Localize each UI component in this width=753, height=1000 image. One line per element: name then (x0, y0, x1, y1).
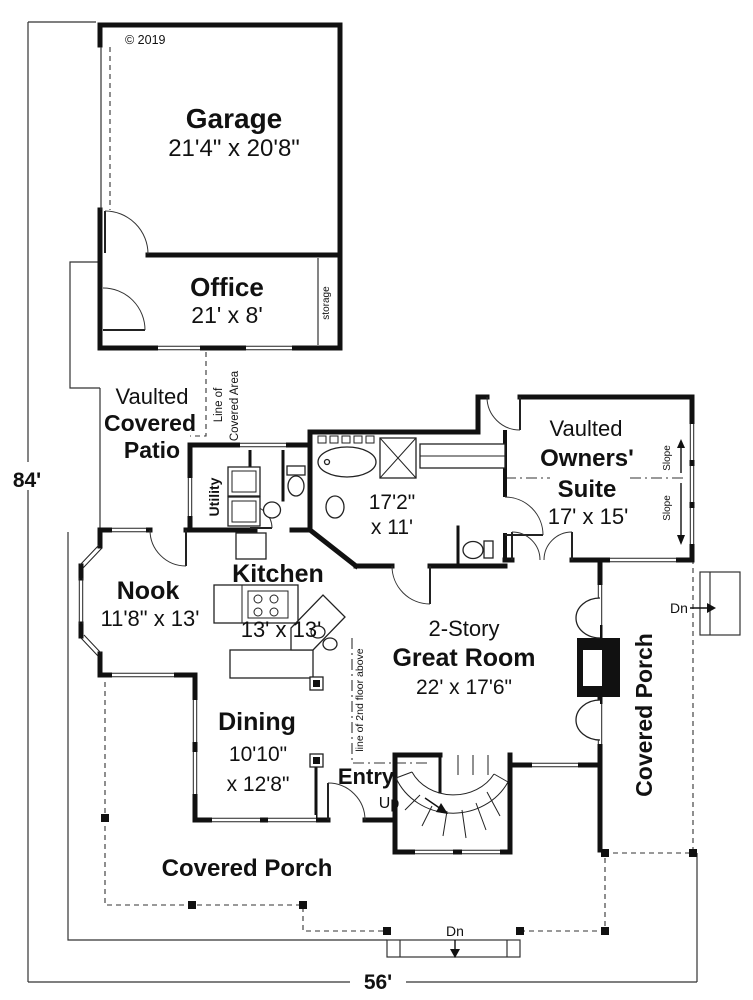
vanity-sink (326, 496, 344, 518)
powder-sink (264, 502, 281, 518)
suite-size: 17' x 15' (548, 504, 629, 529)
tub-deck-tile (318, 436, 374, 443)
kitchen-counter (230, 650, 313, 678)
side-steps (700, 572, 740, 635)
tub-drain (325, 460, 330, 465)
garage-size: 21'4" x 20'8" (168, 135, 300, 162)
width-dimension: 56' (364, 971, 392, 994)
slope-label-1: Slope (662, 445, 673, 471)
powder-toilet-tank (287, 466, 305, 475)
height-dimension: 84' (13, 469, 41, 492)
curved-stair (396, 755, 508, 838)
bath-hall-door (392, 566, 430, 604)
garage-office-door (105, 211, 148, 254)
kitchen-label: Kitchen (232, 560, 324, 588)
great-room-label-2: Great Room (392, 644, 535, 672)
bath-suite-door (505, 497, 543, 535)
dining-label: Dining (218, 708, 296, 736)
bath-size-2: x 11' (371, 516, 413, 539)
wc-toilet-bowl (463, 542, 483, 559)
dining-size-2: x 12'8" (227, 773, 290, 796)
dn-bottom-label: Dn (446, 923, 464, 939)
suite-french-door-left (512, 532, 540, 560)
interior-column-1 (310, 677, 323, 690)
up-label: Up (379, 795, 400, 812)
nook-label: Nook (117, 577, 180, 605)
porch-bottom-label: Covered Porch (162, 855, 333, 882)
garage-label: Garage (186, 103, 283, 134)
interior-column-2 (310, 754, 323, 767)
copyright-text: © 2019 (125, 33, 166, 47)
labels: © 2019 Garage 21'4" x 20'8" Office 21' x… (10, 33, 688, 994)
great-room-label-1: 2-Story (429, 616, 500, 641)
dining-size-1: 10'10" (229, 743, 287, 766)
kitchen-sink-2 (323, 638, 337, 650)
suite-label-1: Vaulted (550, 416, 623, 441)
great-room-size: 22' x 17'6" (416, 676, 512, 699)
covered-area-note-1: Line of (213, 387, 225, 422)
suite-label-3: Suite (558, 476, 617, 503)
nook-size: 11'8" x 13' (101, 606, 200, 631)
suite-label-2: Owners' (540, 445, 634, 472)
stair-treads (396, 772, 508, 838)
slope-arrow-down (677, 535, 685, 545)
storage-label: storage (321, 286, 332, 320)
stair-inner-rail (412, 772, 494, 795)
office-size: 21' x 8' (191, 302, 262, 328)
entry-label: Entry (338, 764, 395, 789)
powder-toilet-bowl (288, 476, 304, 496)
slope-arrow-up (677, 439, 685, 448)
stair-outer-rail (396, 778, 508, 813)
patio-label-1: Vaulted (116, 384, 189, 409)
covered-area-note-2: Covered Area (229, 370, 241, 441)
suite-french-door-right (544, 532, 572, 560)
patio-label-3: Patio (124, 437, 180, 463)
porch-right-label: Covered Porch (631, 633, 657, 797)
stair-upper-treads (458, 755, 488, 775)
floor-plan-svg: © 2019 Garage 21'4" x 20'8" Office 21' x… (0, 0, 753, 1000)
dn-right-label: Dn (670, 600, 688, 616)
wc-toilet-tank (484, 541, 493, 558)
bath-size-1: 17'2" (369, 491, 416, 514)
kitchen-size: 13' x 13' (241, 617, 322, 642)
office-label: Office (190, 272, 264, 302)
patio-nook-door (150, 530, 186, 566)
office-exterior-door (103, 288, 145, 330)
patio-label-2: Covered (104, 410, 196, 436)
patio-notch-edge (70, 262, 100, 388)
refrigerator (236, 533, 266, 559)
utility-label: Utility (206, 477, 222, 516)
suite-entry-door (487, 397, 520, 430)
stair-direction-arrow (436, 803, 448, 814)
niche-lower (576, 700, 600, 740)
bay-window-mid (79, 578, 82, 624)
dn-right-arrow (707, 603, 716, 613)
slope-label-2: Slope (662, 495, 673, 521)
porch-roofline-right (520, 562, 693, 931)
firebox (583, 650, 602, 686)
floor-plan: © 2019 Garage 21'4" x 20'8" Office 21' x… (0, 0, 753, 1000)
second-floor-note: line of 2nd floor above (354, 648, 366, 751)
niche-upper (576, 598, 600, 638)
